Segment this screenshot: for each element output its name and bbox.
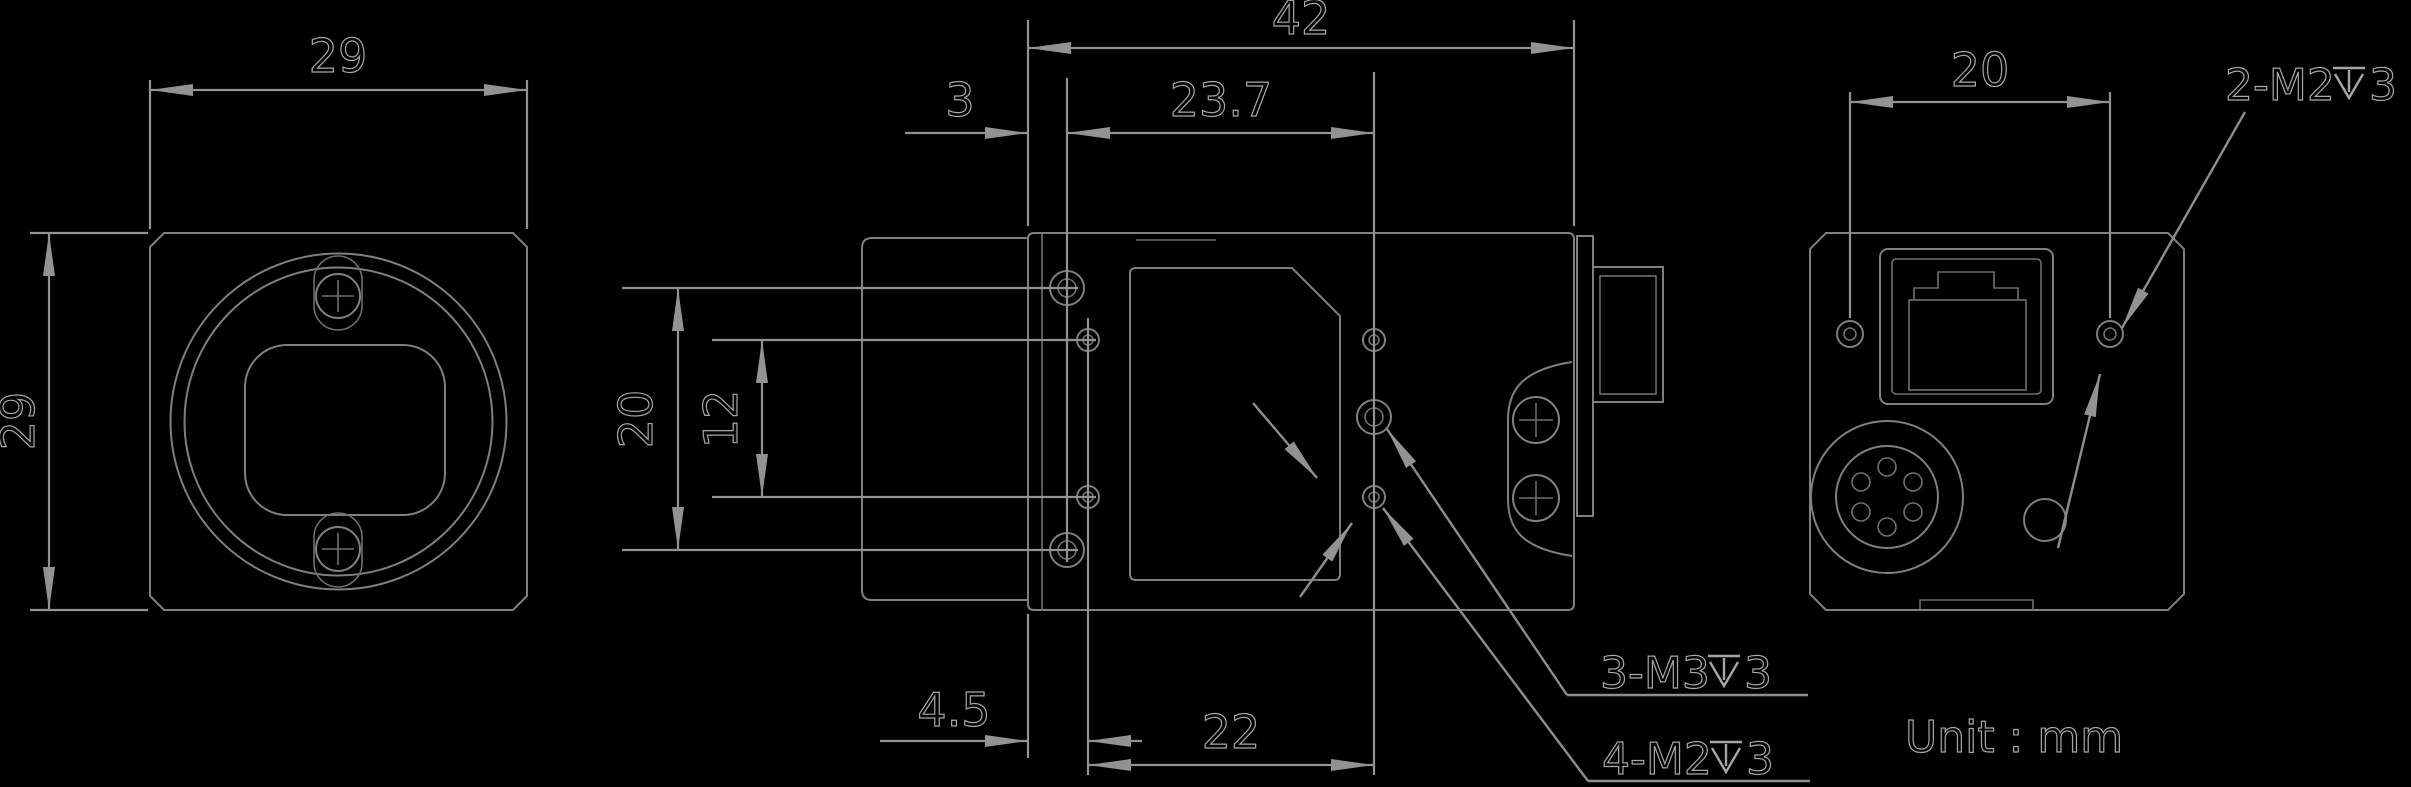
back-view: 20 2-M2 3 xyxy=(1810,43,2397,610)
side-bottom-span-value: 22 xyxy=(1202,705,1261,759)
side-top-span-dimension: 23.7 xyxy=(1067,72,1374,775)
side-inner-span-value: 12 xyxy=(694,390,748,449)
rear-connector-box xyxy=(1593,267,1663,402)
sensor-window xyxy=(245,345,445,515)
side-m2-holes xyxy=(1077,329,1385,508)
side-view: 42 3 23.7 20 12 xyxy=(609,0,1810,785)
power-connector-icon xyxy=(1811,421,1963,573)
m3-callout-label: 3-M3 3 xyxy=(1600,648,1772,699)
drawing-canvas: 29 29 xyxy=(0,0,2411,787)
m3-callout: 3-M3 3 xyxy=(1253,403,1808,699)
front-height-dimension: 29 xyxy=(0,233,148,610)
side-inner-span-dimension: 12 xyxy=(694,340,1096,497)
unit-note: Unit : mm xyxy=(1905,712,2123,763)
front-width-dimension: 29 xyxy=(150,29,527,229)
status-led-icon xyxy=(2024,499,2066,541)
rear-connector-plate xyxy=(1577,236,1593,516)
side-bottom-offset-value: 4.5 xyxy=(917,683,990,737)
side-front-offset-value: 3 xyxy=(945,73,974,127)
label-recess xyxy=(1130,268,1340,580)
back-m2-callout: 2-M2 3 xyxy=(2058,60,2397,548)
side-length-value: 42 xyxy=(1272,0,1331,45)
side-length-dimension: 42 xyxy=(1028,0,1574,226)
back-m2-callout-label: 2-M2 3 xyxy=(2225,60,2397,111)
front-view: 29 29 xyxy=(0,29,527,610)
side-bottom-offset-dimension: 4.5 xyxy=(880,318,1142,775)
back-span-value: 20 xyxy=(1951,43,2010,97)
front-height-value: 29 xyxy=(0,392,45,451)
side-body-outline xyxy=(1028,233,1574,610)
front-width-value: 29 xyxy=(309,29,368,83)
m2-callout: 4-M2 3 xyxy=(1300,508,1810,785)
side-top-span-value: 23.7 xyxy=(1170,73,1272,127)
side-top-screw-icon xyxy=(1513,397,1559,443)
lens-flange-inner-circle xyxy=(185,268,493,576)
back-span-dimension: 20 xyxy=(1850,43,2110,318)
front-bottom-screw-icon xyxy=(316,527,360,571)
front-top-screw-icon xyxy=(316,274,360,318)
bottom-slot xyxy=(1920,600,2033,610)
rear-connector-inner xyxy=(1600,276,1656,394)
ethernet-jack-icon xyxy=(1880,249,2053,404)
back-body-outline xyxy=(1810,233,2184,610)
lens-barrel-outline xyxy=(862,238,1028,600)
side-row-span-dimension: 20 xyxy=(609,288,1078,550)
m2-callout-label: 4-M2 3 xyxy=(1602,734,1774,785)
side-bottom-span-dimension: 22 xyxy=(1088,705,1374,765)
side-bottom-screw-icon xyxy=(1513,475,1559,521)
side-row-span-value: 20 xyxy=(609,390,663,449)
rear-screw-pocket xyxy=(1508,362,1572,556)
